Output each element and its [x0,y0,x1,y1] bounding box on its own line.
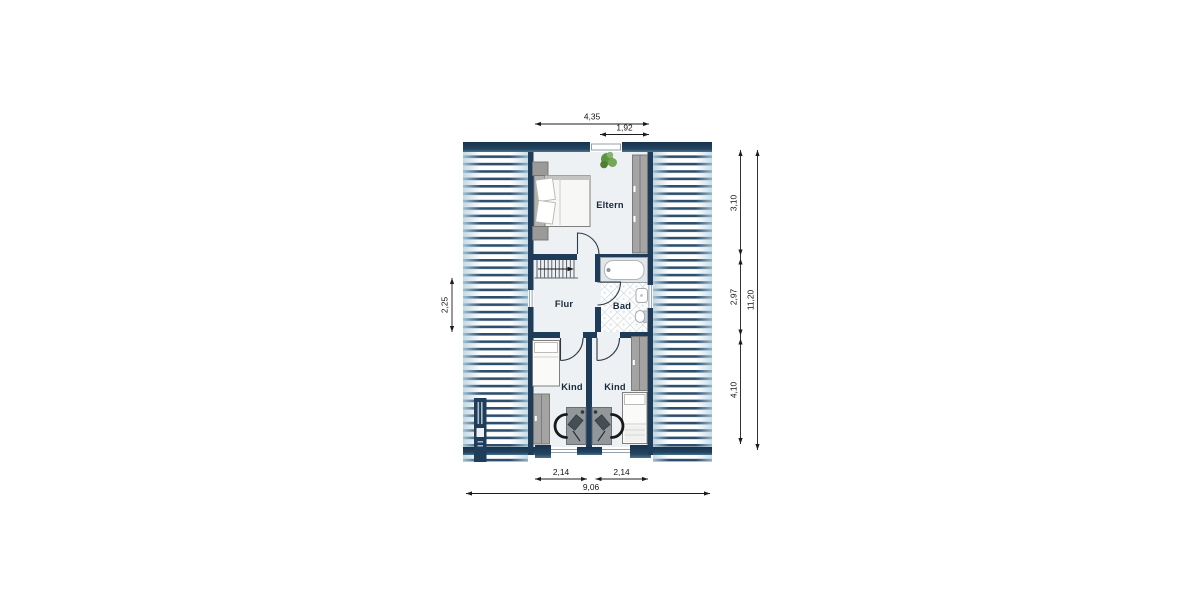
toilet-icon [635,311,647,323]
dimension-label: 9,06 [583,482,600,492]
desk-icon [567,408,587,445]
room-label-bad: Bad [613,301,631,311]
wardrobe-icon [534,394,550,444]
window-flur-left [528,290,534,307]
room-label-kind-right: Kind [604,382,626,392]
window-kind-right-bottom [602,447,630,455]
room-label-flur: Flur [555,299,574,309]
dimension-label: 1,92 [616,123,633,133]
dimension-label: 4,35 [584,112,601,122]
wardrobe-icon [633,155,648,253]
dimension-label: 2,14 [613,467,630,477]
dimension-right-total: 11,20 [746,150,760,450]
dimension-label: 2,25 [440,297,450,314]
dimension-label: 11,20 [746,289,756,310]
single-bed-icon [533,341,560,387]
dimension-label: 2,14 [553,467,570,477]
dimension-bottom-1: 2,14 [535,467,587,481]
room-label-kind-left: Kind [561,382,583,392]
double-bed-icon [534,176,590,227]
window-top [590,142,622,152]
washbasin-icon [636,289,648,303]
dimension-bottom-total: 9,06 [466,482,710,496]
window-bad-right [648,285,654,308]
dimension-label: 4,10 [729,382,739,399]
dimension-right-chain: 3,10 2,97 4,10 [729,150,743,444]
roof-area-right [653,152,712,462]
nightstand-icon [533,227,549,241]
floor-plan: Eltern Flur Bad Kind Kind 4,35 1,92 3,10… [0,0,1200,600]
desk-icon [592,408,612,445]
floor-plan-canvas: Eltern Flur Bad Kind Kind 4,35 1,92 3,10… [0,0,1200,600]
dimension-top-2: 1,92 [600,123,649,137]
window-kind-left-bottom [551,447,577,455]
dimension-bottom-2: 2,14 [596,467,649,481]
logo-badge [474,398,487,462]
wardrobe-icon [632,337,648,391]
roof-area-left [463,152,528,462]
nightstand-icon [533,162,549,176]
single-bed-icon [623,393,648,444]
dimension-left: 2,25 [440,278,455,332]
dimension-label: 3,10 [729,195,739,212]
bathtub-icon [601,258,648,283]
dimension-label: 2,97 [729,289,739,306]
room-label-eltern: Eltern [596,200,624,210]
